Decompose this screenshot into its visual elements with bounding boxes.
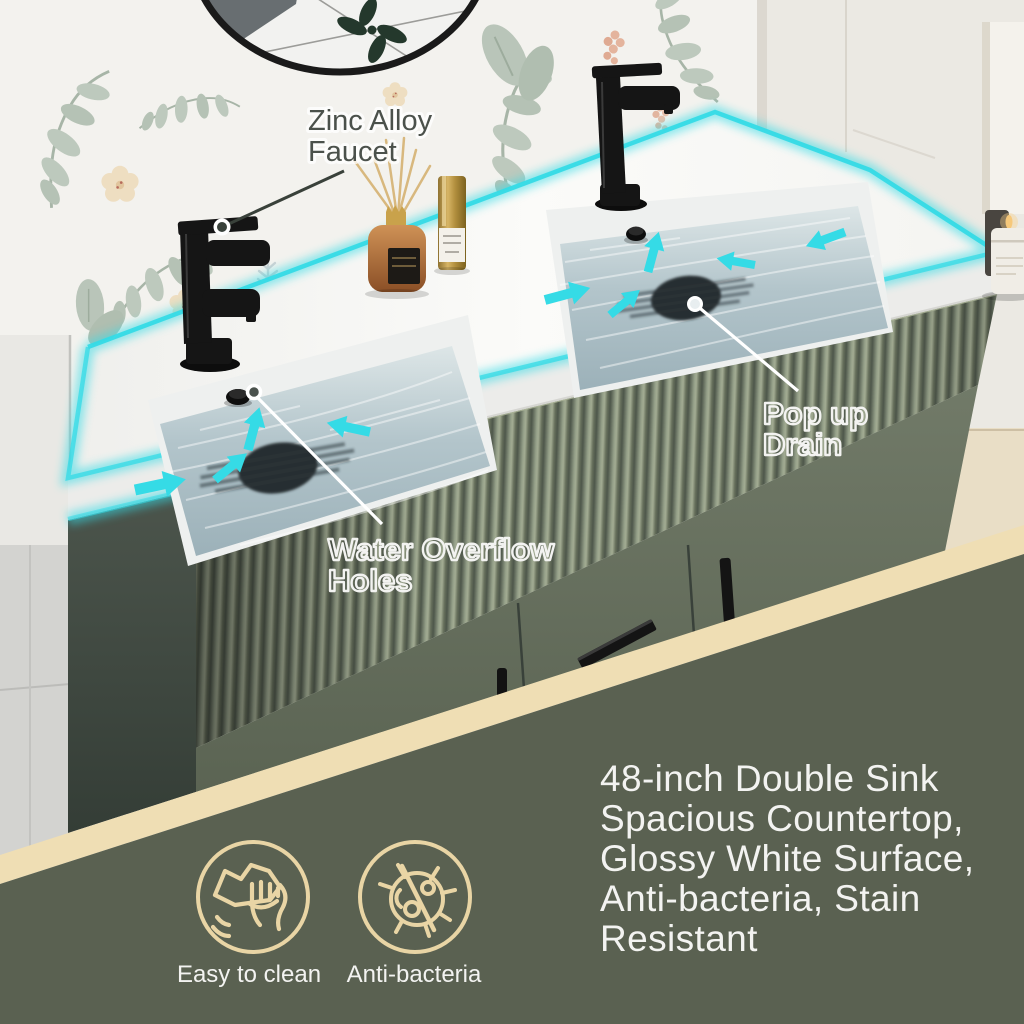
- candle-flame: [1006, 215, 1013, 229]
- callout-faucet-line1: Zinc Alloy: [308, 105, 433, 137]
- description-line: Resistant: [600, 918, 758, 959]
- callout-dot: [689, 298, 702, 311]
- description-line: Glossy White Surface,: [600, 838, 974, 879]
- cabinet-side: [68, 489, 196, 833]
- vanity-product-infographic: Easy to clean Anti-bacteria 48-inch Doub…: [0, 0, 1024, 1024]
- callout-faucet-line2: Faucet: [308, 136, 397, 168]
- tile-wall: [0, 335, 70, 856]
- scene: Easy to clean Anti-bacteria 48-inch Doub…: [0, 0, 1024, 1024]
- callout-dot: [248, 386, 261, 399]
- callout-drain-line2: Drain: [763, 427, 842, 462]
- callout-overflow-line2: Holes: [328, 563, 412, 598]
- description-line: Anti-bacteria, Stain: [600, 878, 921, 919]
- bottle-label: [439, 228, 465, 262]
- pump-bottle: [434, 176, 470, 275]
- white-candle-jar: [991, 228, 1024, 294]
- description-line: Spacious Countertop,: [600, 798, 964, 839]
- feature-label-anti-bacteria: Anti-bacteria: [347, 961, 482, 988]
- callout-drain-line1: Pop up: [763, 396, 868, 431]
- callout-overflow-line1: Water Overflow: [328, 532, 555, 567]
- feature-label-easy-to-clean: Easy to clean: [177, 961, 321, 988]
- description-line: 48-inch Double Sink: [600, 758, 939, 799]
